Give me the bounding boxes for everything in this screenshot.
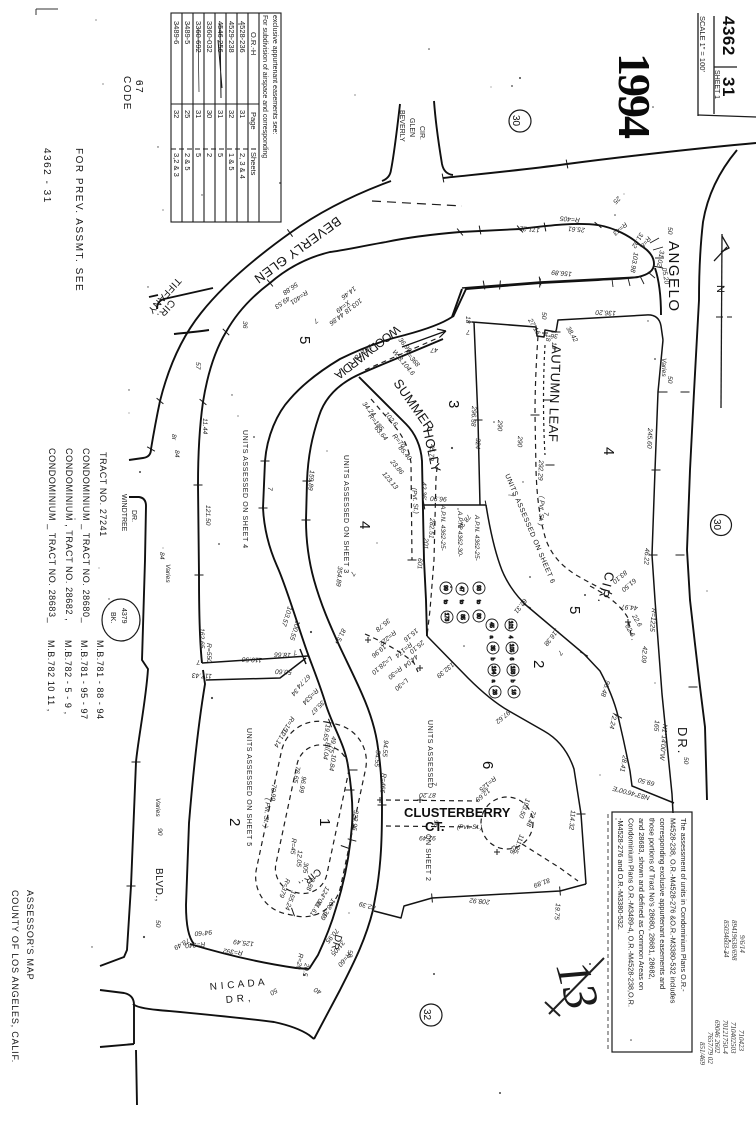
svg-text:M.B.782 - 5 - 9 ,: M.B.782 - 5 - 9 ,	[63, 640, 73, 715]
svg-text:194: 194	[490, 666, 496, 675]
svg-text:36: 36	[550, 332, 558, 339]
svg-text:96: 96	[432, 820, 439, 828]
svg-text:121.50: 121.50	[204, 505, 211, 526]
svg-text:67: 67	[133, 80, 144, 94]
svg-text:CLUSTERBERRY: CLUSTERBERRY	[404, 805, 511, 820]
svg-text:2: 2	[205, 153, 214, 157]
svg-text:4362: 4362	[719, 16, 738, 56]
svg-text:exclusive appurtenant easement: exclusive appurtenant easements see:	[271, 15, 278, 135]
svg-text:-M4528-276 and O.R.-M3380-532.: -M4528-276 and O.R.-M3380-532.	[616, 818, 625, 930]
svg-text:282.51: 282.51	[427, 517, 435, 539]
svg-text:7: 7	[430, 782, 437, 786]
svg-text:CIR.: CIR.	[418, 126, 425, 140]
svg-text:110.56: 110.56	[242, 655, 262, 663]
svg-text:R=550: R=550	[205, 643, 212, 663]
svg-text:601: 601	[416, 558, 423, 570]
svg-text:6: 6	[479, 761, 496, 769]
svg-text:b: b	[489, 658, 495, 661]
svg-text:84: 84	[158, 552, 165, 560]
svg-text:UNITS ASSESSED ON SHEET 3: UNITS ASSESSED ON SHEET 3	[342, 455, 349, 574]
svg-text:28: 28	[491, 689, 497, 695]
svg-text:19: 19	[550, 342, 557, 350]
svg-text:25: 25	[183, 110, 192, 118]
svg-text:173: 173	[443, 613, 449, 622]
svg-text:117.43: 117.43	[192, 671, 212, 679]
svg-text:35: 35	[489, 645, 495, 651]
svg-text:Varies: Varies	[154, 798, 161, 817]
svg-text:5: 5	[216, 153, 225, 157]
svg-text:Condominium Plans O.R.-M3489-4: Condominium Plans O.R.-M3489-4, O.R.-M45…	[627, 818, 636, 1007]
svg-text:For subdivision of airspace an: For subdivision of airspace and correspo…	[261, 15, 268, 158]
svg-text:32: 32	[421, 1009, 432, 1021]
svg-text:89419638/698: 89419638/698	[730, 920, 738, 961]
svg-text:7: 7	[466, 328, 470, 335]
svg-text:BK.: BK.	[109, 612, 116, 623]
svg-text:1 & 5: 1 & 5	[227, 153, 236, 171]
svg-text:5: 5	[194, 153, 203, 157]
svg-text:4379: 4379	[120, 608, 127, 624]
svg-text:UNITS ASSESSED: UNITS ASSESSED	[426, 720, 433, 789]
svg-text:31: 31	[216, 110, 225, 118]
svg-text:47: 47	[458, 586, 464, 592]
svg-text:4: 4	[507, 636, 513, 639]
svg-text:WINDTREE: WINDTREE	[120, 494, 127, 532]
svg-text:19.75: 19.75	[553, 903, 561, 921]
svg-text:162.65: 162.65	[198, 628, 205, 649]
svg-text:3,2 & 3: 3,2 & 3	[172, 153, 181, 177]
svg-text:44.97: 44.97	[621, 603, 639, 611]
svg-text:50: 50	[682, 757, 689, 765]
svg-text:Varies: Varies	[660, 358, 667, 377]
svg-text:290: 290	[496, 419, 503, 432]
svg-text:90: 90	[156, 828, 163, 836]
svg-text:7657/79 02: 7657/79 02	[706, 1032, 714, 1064]
svg-text:SHEET 1: SHEET 1	[713, 70, 720, 99]
svg-text:8r: 8r	[170, 434, 177, 441]
svg-text:3360-032: 3360-032	[205, 21, 214, 53]
svg-text:136.20: 136.20	[595, 308, 616, 316]
svg-text:CONDOMINIUM _ TRACT NO. 28683_: CONDOMINIUM _ TRACT NO. 28683_	[47, 448, 57, 624]
svg-text:2: 2	[530, 660, 547, 668]
svg-text:50: 50	[666, 227, 673, 235]
svg-text:50: 50	[154, 920, 161, 928]
svg-text:93: 93	[475, 585, 481, 591]
svg-text:4529-238: 4529-238	[227, 21, 236, 53]
svg-text:6: 6	[508, 658, 514, 661]
svg-text:CODE: CODE	[121, 76, 132, 111]
svg-text:A.P.N. 4362-25-: A.P.N. 4362-25-	[439, 504, 446, 552]
svg-text:12.05: 12.05	[295, 850, 303, 868]
svg-text:46.22: 46.22	[642, 548, 650, 565]
svg-text:1: 1	[316, 818, 333, 826]
svg-text:BEVERLY: BEVERLY	[398, 110, 405, 142]
svg-text:A.P.N. 4362-30-: A.P.N. 4362-30-	[456, 510, 463, 558]
svg-text:4362 - 31: 4362 - 31	[41, 148, 52, 204]
svg-text:Sheets: Sheets	[249, 152, 258, 176]
svg-text:TRACT NO. 27241: TRACT NO. 27241	[98, 452, 108, 537]
svg-text:710402503: 710402503	[729, 1022, 737, 1054]
svg-text:851/469: 851/469	[698, 1042, 706, 1065]
svg-text:UNITS ASSESSED ON SHEET 5: UNITS ASSESSED ON SHEET 5	[245, 728, 252, 847]
svg-text:2, 3 & 4: 2, 3 & 4	[238, 153, 247, 179]
svg-text:70121750-4: 70121750-4	[721, 1020, 729, 1054]
svg-text:201: 201	[422, 537, 429, 550]
svg-text:3489-6: 3489-6	[172, 21, 181, 44]
svg-text:5: 5	[296, 336, 313, 344]
svg-text:18: 18	[464, 316, 471, 324]
svg-text:165: 165	[652, 720, 660, 732]
svg-text:324: 324	[474, 438, 481, 450]
svg-text:those portions of Tract No's 2: those portions of Tract No's 28680, 2868…	[648, 818, 657, 980]
svg-text:290: 290	[516, 435, 523, 448]
svg-text:3: 3	[445, 400, 462, 408]
svg-text:Page: Page	[249, 112, 258, 130]
svg-text:42.09: 42.09	[640, 646, 648, 664]
svg-text:4: 4	[600, 447, 617, 455]
svg-text:16: 16	[510, 689, 516, 695]
svg-text:CONDOMINIUM , TRACT NO. 28682: CONDOMINIUM , TRACT NO. 28682 ,	[64, 448, 74, 621]
svg-text:42.36': 42.36'	[420, 482, 427, 501]
svg-text:84: 84	[173, 450, 180, 458]
svg-text:SCALE 1” = 100’: SCALE 1” = 100’	[698, 16, 707, 72]
svg-text:45: 45	[488, 622, 494, 628]
svg-text:92.49: 92.49	[419, 834, 436, 841]
svg-text:(Pvt. St.): (Pvt. St.)	[457, 824, 482, 831]
svg-text:296.38: 296.38	[469, 405, 477, 427]
svg-text:85034603-34: 85034603-34	[722, 920, 730, 958]
svg-text:M.B.781 - 95 - 97: M.B.781 - 95 - 97	[79, 640, 89, 720]
svg-text:DR.: DR.	[675, 727, 690, 755]
svg-text:94.55: 94.55	[381, 740, 389, 758]
svg-text:54.55: 54.55	[373, 750, 381, 768]
svg-text:11.44: 11.44	[201, 418, 208, 435]
svg-text:9/6/14: 9/6/14	[738, 935, 746, 953]
svg-text:a: a	[488, 636, 494, 639]
svg-text:1994: 1994	[609, 53, 660, 139]
svg-text:O.R.-H: O.R.-H	[249, 32, 258, 55]
svg-text:50: 50	[666, 376, 673, 384]
svg-text:305: 305	[301, 862, 309, 874]
svg-text:87.20: 87.20	[419, 791, 436, 798]
svg-text:96.90: 96.90	[430, 494, 447, 502]
svg-text:M.B.782 10 11 ,: M.B.782 10 11 ,	[46, 640, 56, 712]
svg-text:The assessment of units in Con: The assessment of units in Condominium P…	[679, 818, 688, 992]
svg-text:FOR PREV. ASSMT. SEE: FOR PREV. ASSMT. SEE	[73, 148, 84, 292]
svg-text:36: 36	[241, 321, 248, 329]
svg-text:and 28683, shown and defined a: and 28683, shown and defined as Common A…	[637, 818, 646, 990]
svg-text:to: to	[442, 600, 448, 604]
svg-text:57: 57	[194, 362, 201, 370]
svg-text:ASSESSOR'S MAP: ASSESSOR'S MAP	[25, 890, 35, 980]
svg-text:99: 99	[442, 585, 448, 591]
svg-text:7: 7	[266, 487, 273, 491]
svg-text:47: 47	[430, 346, 438, 353]
svg-text:710423: 710423	[737, 1030, 745, 1052]
svg-text:4528-236: 4528-236	[238, 21, 247, 53]
svg-text:( Pvt. St. ): ( Pvt. St. )	[537, 496, 545, 526]
svg-text:a: a	[490, 680, 496, 683]
svg-text:to: to	[458, 600, 464, 604]
svg-text:5: 5	[566, 606, 583, 614]
svg-text:85: 85	[459, 614, 465, 620]
svg-text:50: 50	[540, 312, 547, 320]
svg-text:30: 30	[510, 115, 521, 127]
svg-text:M.B.781 - 88 - 94: M.B.781 - 88 - 94	[95, 640, 105, 720]
svg-text:BLVD.,: BLVD.,	[153, 868, 164, 902]
svg-text:30: 30	[205, 110, 214, 118]
svg-text:30: 30	[711, 519, 722, 531]
svg-text:M4528-238, O.R.-M4528-276 &O.R: M4528-238, O.R.-M4528-276 &O.R.-M3380-53…	[669, 818, 678, 1004]
svg-text:80: 80	[475, 613, 481, 619]
svg-text:31: 31	[719, 77, 738, 97]
svg-text:COUNTY OF LOS ANGELES, CALIF.: COUNTY OF LOS ANGELES, CALIF.	[10, 890, 20, 1063]
svg-text:292.29: 292.29	[536, 459, 544, 481]
svg-text:105: 105	[508, 644, 514, 653]
svg-text:94°60: 94°60	[194, 928, 212, 938]
svg-text:18.66: 18.66	[274, 650, 291, 658]
svg-text:R=45: R=45	[289, 838, 297, 855]
svg-text:GLEN: GLEN	[408, 118, 415, 137]
svg-text:DR.: DR.	[130, 510, 137, 522]
svg-text:32: 32	[172, 110, 181, 118]
svg-text:N: N	[714, 285, 726, 293]
svg-text:to: to	[475, 600, 481, 604]
svg-text:CONDOMINIUM _ TRACT NO. 28680_: CONDOMINIUM _ TRACT NO. 28680_	[81, 448, 91, 624]
svg-text:32: 32	[227, 110, 236, 118]
svg-text:31: 31	[238, 110, 247, 118]
svg-text:158: 158	[509, 666, 515, 675]
svg-text:31: 31	[194, 110, 203, 118]
svg-text:245.60: 245.60	[645, 427, 653, 449]
svg-text:101: 101	[507, 621, 513, 630]
svg-text:69046 2602: 69046 2602	[713, 1020, 721, 1054]
svg-text:7: 7	[542, 512, 549, 516]
svg-text:D R ,: D R ,	[225, 993, 251, 1006]
svg-text:b: b	[509, 680, 515, 683]
svg-text:Varies: Varies	[164, 564, 171, 583]
svg-text:3489-5: 3489-5	[183, 21, 192, 44]
svg-text:45.79: 45.79	[427, 444, 435, 461]
svg-text:corresponding exclusive appurt: corresponding exclusive appurtenant ease…	[658, 818, 667, 989]
svg-text:50.60: 50.60	[275, 667, 292, 675]
svg-text:A.P.N. 4362-25-: A.P.N. 4362-25-	[473, 514, 480, 562]
svg-text:2 & 5: 2 & 5	[183, 153, 192, 171]
svg-text:2: 2	[226, 818, 243, 826]
svg-text:4: 4	[356, 521, 373, 529]
svg-text:UNITS ASSESSED ON SHEET 4: UNITS ASSESSED ON SHEET 4	[241, 430, 248, 549]
